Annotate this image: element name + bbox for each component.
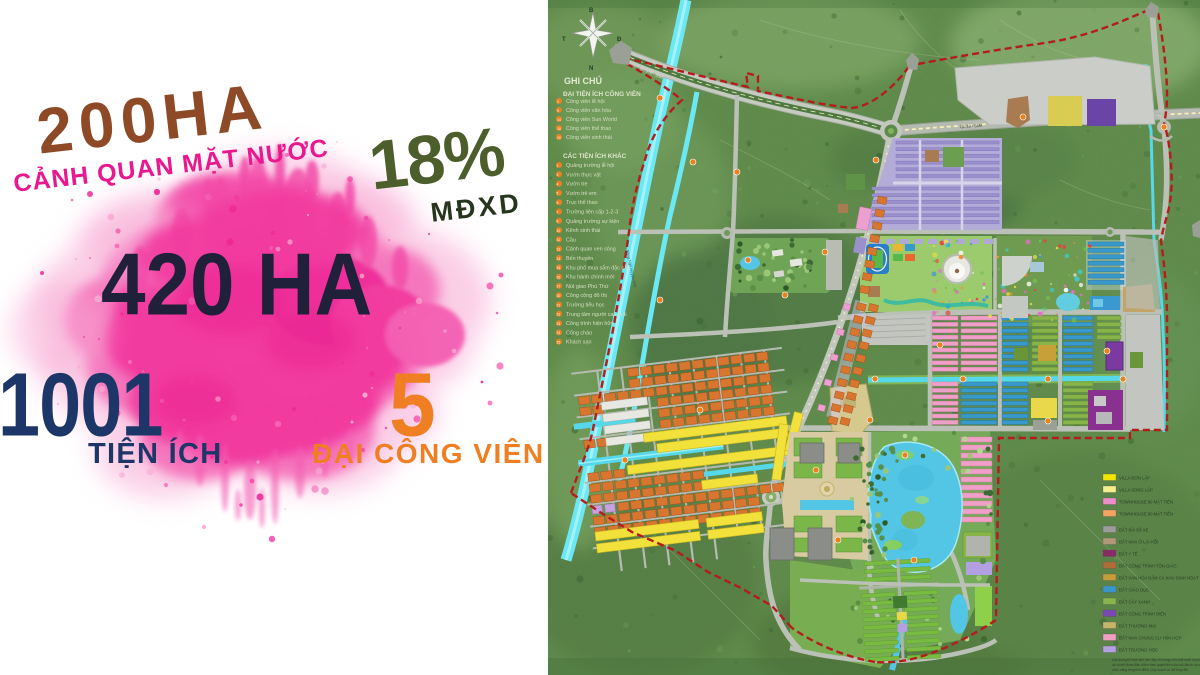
svg-text:19: 19 bbox=[557, 136, 561, 140]
svg-text:Các thông tin hình ảnh trên đâ: Các thông tin hình ảnh trên đây chỉ mang… bbox=[1112, 658, 1200, 662]
svg-text:ĐẤT NHÀ CHUNG CƯ HỗN HỢP: ĐẤT NHÀ CHUNG CƯ HỗN HỢP bbox=[1119, 636, 1182, 641]
svg-text:Vườn trẻ em: Vườn trẻ em bbox=[566, 191, 597, 197]
svg-text:Công viên sinh thái: Công viên sinh thái bbox=[566, 135, 612, 141]
svg-text:CÁC TIỆN ÍCH KHÁC: CÁC TIỆN ÍCH KHÁC bbox=[563, 151, 627, 160]
svg-text:ĐẤT Y TẾ: ĐẤT Y TẾ bbox=[1119, 552, 1138, 557]
svg-text:Khách sạn: Khách sạn bbox=[566, 340, 591, 346]
svg-text:ĐẤT BÃI Đỗ XE: ĐẤT BÃI Đỗ XE bbox=[1119, 528, 1149, 533]
svg-text:18: 18 bbox=[557, 127, 561, 131]
svg-text:ĐẤT VĂN HÓA ĐẬM CÁ KHU SINH HO: ĐẤT VĂN HÓA ĐẬM CÁ KHU SINH HOẠT bbox=[1119, 576, 1199, 581]
svg-text:Trục thể thao: Trục thể thao bbox=[566, 199, 598, 206]
svg-text:5: 5 bbox=[557, 192, 559, 196]
svg-text:B: B bbox=[589, 8, 594, 14]
svg-text:16: 16 bbox=[557, 275, 561, 279]
svg-text:N: N bbox=[589, 66, 593, 72]
svg-text:Vườn thực vật: Vườn thực vật bbox=[566, 172, 601, 178]
svg-text:10: 10 bbox=[557, 229, 561, 233]
svg-text:ĐẤT CÂY XANH: ĐẤT CÂY XANH bbox=[1119, 600, 1150, 605]
svg-text:ĐẤT CÔNG TRÌNH TÔN GIÁO: ĐẤT CÔNG TRÌNH TÔN GIÁO bbox=[1119, 564, 1177, 569]
svg-text:Khu phố mua sắm đặc sắc: Khu phố mua sắm đặc sắc bbox=[566, 264, 630, 271]
svg-text:Vườn tre: Vườn tre bbox=[566, 182, 588, 188]
svg-text:Trường liên cấp 1-2-3: Trường liên cấp 1-2-3 bbox=[566, 210, 618, 216]
svg-text:Cổng chào: Cổng chào bbox=[566, 329, 592, 336]
svg-text:GHI CHÚ: GHI CHÚ bbox=[564, 75, 602, 86]
svg-text:22: 22 bbox=[557, 313, 561, 317]
svg-text:Công viên thể thao: Công viên thể thao bbox=[566, 125, 611, 132]
svg-text:ĐẤT TRƯỜNG HỌC: ĐẤT TRƯỜNG HỌC bbox=[1119, 648, 1158, 653]
svg-text:Công viên lễ hội: Công viên lễ hội bbox=[566, 98, 605, 105]
svg-text:ĐẠI TIỆN ÍCH CÔNG VIÊN: ĐẠI TIỆN ÍCH CÔNG VIÊN bbox=[563, 89, 641, 98]
svg-text:Trường tiểu học: Trường tiểu học bbox=[566, 302, 605, 309]
svg-text:ĐẤT THƯƠNG MẠI: ĐẤT THƯƠNG MẠI bbox=[1119, 624, 1156, 629]
svg-text:VILLA SONG LẬP: VILLA SONG LẬP bbox=[1119, 488, 1153, 493]
svg-text:Công viên Sun World: Công viên Sun World bbox=[566, 117, 617, 123]
svg-text:TOWNHOUSE 80 MẬT TIỀN: TOWNHOUSE 80 MẬT TIỀN bbox=[1119, 512, 1173, 517]
svg-text:T: T bbox=[562, 37, 566, 43]
svg-text:9: 9 bbox=[557, 109, 559, 113]
svg-text:và có thể được điều chỉnh theo: và có thể được điều chỉnh theo quyết địn… bbox=[1112, 663, 1200, 667]
svg-text:Công trình hiện hữu: Công trình hiện hữu bbox=[566, 321, 614, 327]
svg-text:17: 17 bbox=[557, 285, 561, 289]
svg-text:ĐẤT CÔNG TRÌNH ĐIỆN: ĐẤT CÔNG TRÌNH ĐIỆN bbox=[1119, 612, 1166, 617]
svg-text:ĐẤT NHÀ Ở LẬI HỔI: ĐẤT NHÀ Ở LẬI HỔI bbox=[1119, 540, 1158, 545]
svg-text:Kênh sinh thái: Kênh sinh thái bbox=[566, 228, 600, 234]
svg-text:Nút giao Phú Thứ: Nút giao Phú Thứ bbox=[566, 284, 609, 290]
svg-text:14: 14 bbox=[557, 118, 561, 122]
svg-text:23: 23 bbox=[557, 322, 561, 326]
svg-text:Bến thuyền: Bến thuyền bbox=[566, 256, 593, 262]
svg-text:Đ: Đ bbox=[617, 37, 622, 43]
svg-text:24: 24 bbox=[557, 331, 561, 335]
svg-text:8: 8 bbox=[557, 220, 559, 224]
svg-text:chức năng từng thời điểm. Quy: chức năng từng thời điểm. Quy hoạch có t… bbox=[1112, 668, 1188, 672]
svg-text:3: 3 bbox=[557, 173, 559, 177]
svg-text:20: 20 bbox=[557, 294, 561, 298]
svg-text:7: 7 bbox=[557, 210, 559, 214]
svg-text:Công viên văn hóa: Công viên văn hóa bbox=[566, 108, 611, 114]
svg-text:2: 2 bbox=[557, 100, 559, 104]
svg-text:4: 4 bbox=[557, 182, 559, 186]
svg-text:11: 11 bbox=[557, 238, 561, 242]
svg-text:12: 12 bbox=[557, 248, 561, 252]
svg-text:ĐẤT GIÁO DỤC: ĐẤT GIÁO DỤC bbox=[1119, 588, 1149, 593]
svg-text:Công cộng đô thị: Công cộng đô thị bbox=[566, 293, 607, 299]
svg-text:Cảnh quan ven sông: Cảnh quan ven sông bbox=[566, 247, 616, 253]
svg-text:6: 6 bbox=[557, 201, 559, 205]
svg-text:15: 15 bbox=[557, 266, 561, 270]
svg-text:21: 21 bbox=[557, 303, 561, 307]
svg-text:13: 13 bbox=[557, 257, 561, 261]
svg-text:VILLA ĐƠN LẬP: VILLA ĐƠN LẬP bbox=[1119, 476, 1150, 481]
svg-text:1: 1 bbox=[557, 164, 559, 168]
svg-text:TOWNHOUSE 90 MẬT TIỀN: TOWNHOUSE 90 MẬT TIỀN bbox=[1119, 500, 1173, 505]
svg-text:Quảng trường lễ hội: Quảng trường lễ hội bbox=[566, 162, 615, 169]
svg-text:Cầu: Cầu bbox=[566, 237, 576, 243]
svg-text:Khu hành chính mới: Khu hành chính mới bbox=[566, 275, 615, 281]
svg-text:Trung tâm người cao tuổi: Trung tâm người cao tuổi bbox=[566, 311, 627, 318]
svg-text:25: 25 bbox=[557, 341, 561, 345]
svg-text:Quảng trường sự kiện: Quảng trường sự kiện bbox=[566, 219, 619, 225]
